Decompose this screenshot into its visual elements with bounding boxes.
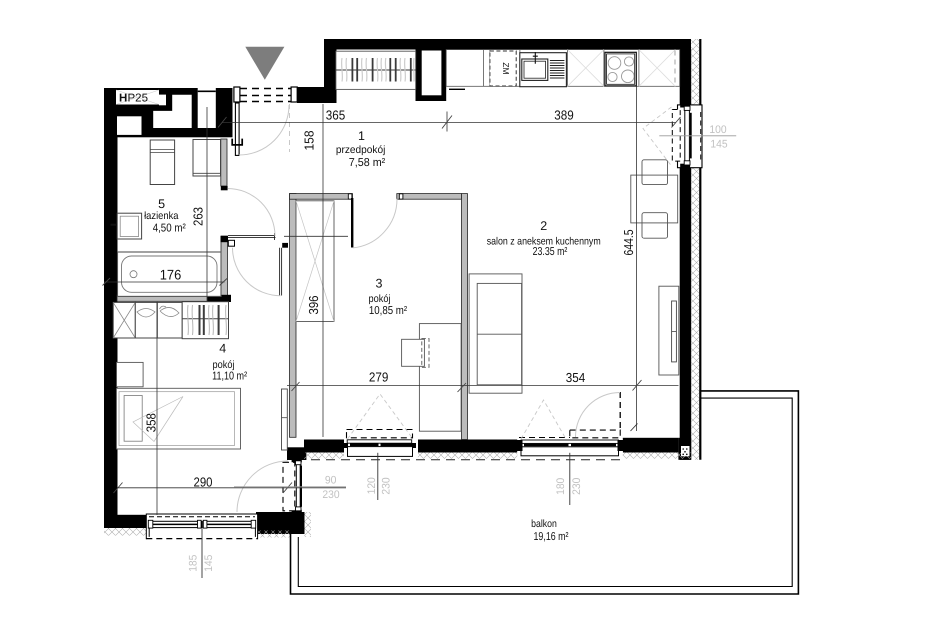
svg-text:145: 145 — [710, 139, 727, 151]
svg-text:644.5: 644.5 — [621, 230, 636, 256]
svg-text:290: 290 — [194, 474, 213, 489]
svg-text:120: 120 — [366, 477, 378, 494]
svg-text:przedpokój: przedpokój — [336, 144, 386, 156]
svg-text:354: 354 — [566, 370, 586, 385]
svg-text:389: 389 — [554, 108, 574, 123]
svg-text:180: 180 — [555, 478, 567, 495]
svg-text:230: 230 — [571, 478, 583, 495]
svg-text:23.35 m²: 23.35 m² — [533, 246, 568, 258]
svg-text:5: 5 — [158, 197, 165, 211]
svg-text:pokój: pokój — [213, 359, 235, 371]
svg-text:185: 185 — [187, 555, 199, 572]
svg-text:7,58 m²: 7,58 m² — [349, 157, 386, 169]
svg-text:100: 100 — [709, 124, 726, 136]
svg-text:ZM: ZM — [501, 62, 511, 74]
svg-text:P25: P25 — [128, 93, 148, 105]
svg-text:4,50 m²: 4,50 m² — [153, 223, 186, 235]
svg-text:279: 279 — [369, 370, 389, 385]
svg-text:396: 396 — [306, 296, 321, 315]
svg-text:3: 3 — [376, 277, 383, 291]
svg-text:11,10 m²: 11,10 m² — [212, 371, 247, 383]
svg-text:176: 176 — [160, 267, 182, 283]
svg-text:balkon: balkon — [531, 518, 557, 530]
svg-text:263: 263 — [191, 207, 206, 226]
svg-text:1: 1 — [358, 129, 365, 143]
svg-text:90: 90 — [325, 475, 337, 487]
svg-text:19,16 m²: 19,16 m² — [534, 531, 569, 543]
svg-text:358: 358 — [144, 413, 159, 432]
svg-text:H: H — [119, 93, 127, 105]
svg-text:230: 230 — [380, 477, 392, 494]
svg-text:2: 2 — [540, 219, 547, 233]
svg-text:230: 230 — [322, 489, 339, 501]
svg-text:158: 158 — [302, 131, 317, 151]
svg-text:łazienka: łazienka — [144, 210, 179, 222]
svg-text:10,85 m²: 10,85 m² — [369, 305, 407, 317]
svg-text:4: 4 — [219, 342, 226, 356]
svg-text:pokój: pokój — [369, 293, 391, 305]
svg-text:365: 365 — [326, 108, 346, 123]
svg-text:145: 145 — [203, 555, 215, 572]
